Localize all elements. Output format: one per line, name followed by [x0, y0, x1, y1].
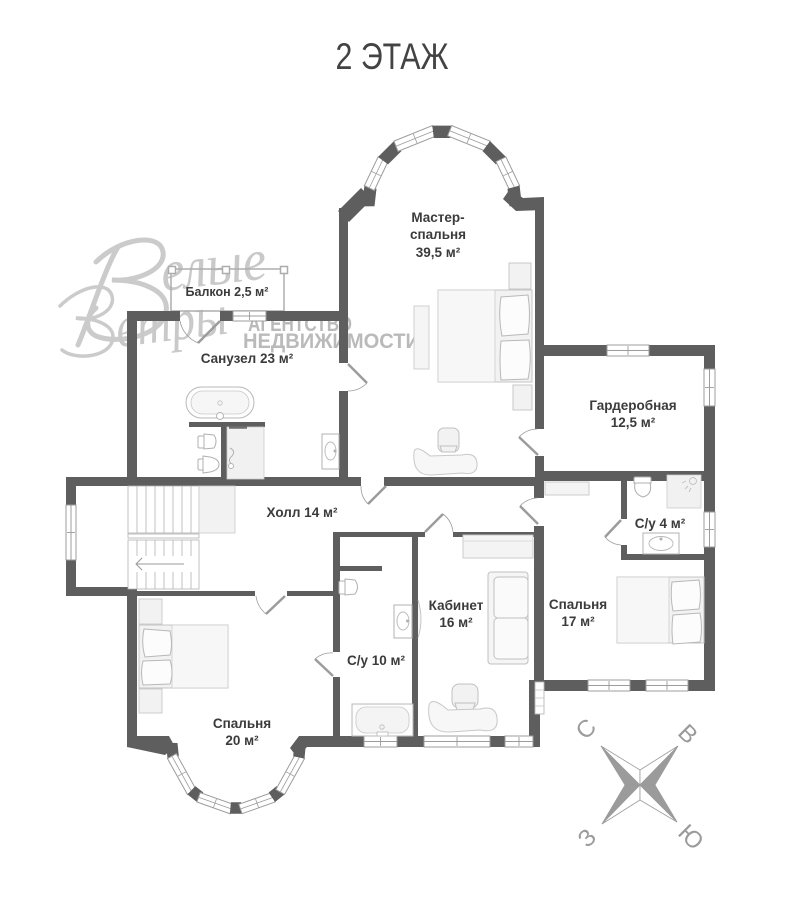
svg-text:Спальня: Спальня	[549, 597, 607, 612]
svg-text:Санузел 23 м²: Санузел 23 м²	[201, 351, 294, 366]
svg-text:НЕДВИЖИМОСТИ: НЕДВИЖИМОСТИ	[243, 330, 420, 353]
svg-text:С/у 10 м²: С/у 10 м²	[347, 653, 406, 668]
svg-text:20 м²: 20 м²	[225, 733, 259, 748]
svg-text:Балкон 2,5 м²: Балкон 2,5 м²	[186, 285, 269, 299]
svg-text:С/у 4 м²: С/у 4 м²	[635, 516, 686, 531]
svg-text:спальня: спальня	[410, 227, 466, 242]
svg-text:Спальня: Спальня	[213, 716, 271, 731]
svg-text:Гардеробная: Гардеробная	[589, 398, 676, 413]
svg-text:Холл 14 м²: Холл 14 м²	[267, 505, 338, 520]
svg-text:12,5 м²: 12,5 м²	[611, 415, 656, 430]
svg-text:Кабинет: Кабинет	[429, 598, 484, 613]
svg-text:39,5 м²: 39,5 м²	[416, 245, 461, 260]
svg-text:16 м²: 16 м²	[439, 615, 473, 630]
svg-text:17 м²: 17 м²	[561, 614, 595, 629]
svg-text:2 ЭТАЖ: 2 ЭТАЖ	[336, 36, 449, 77]
svg-text:Мастер-: Мастер-	[411, 210, 464, 225]
